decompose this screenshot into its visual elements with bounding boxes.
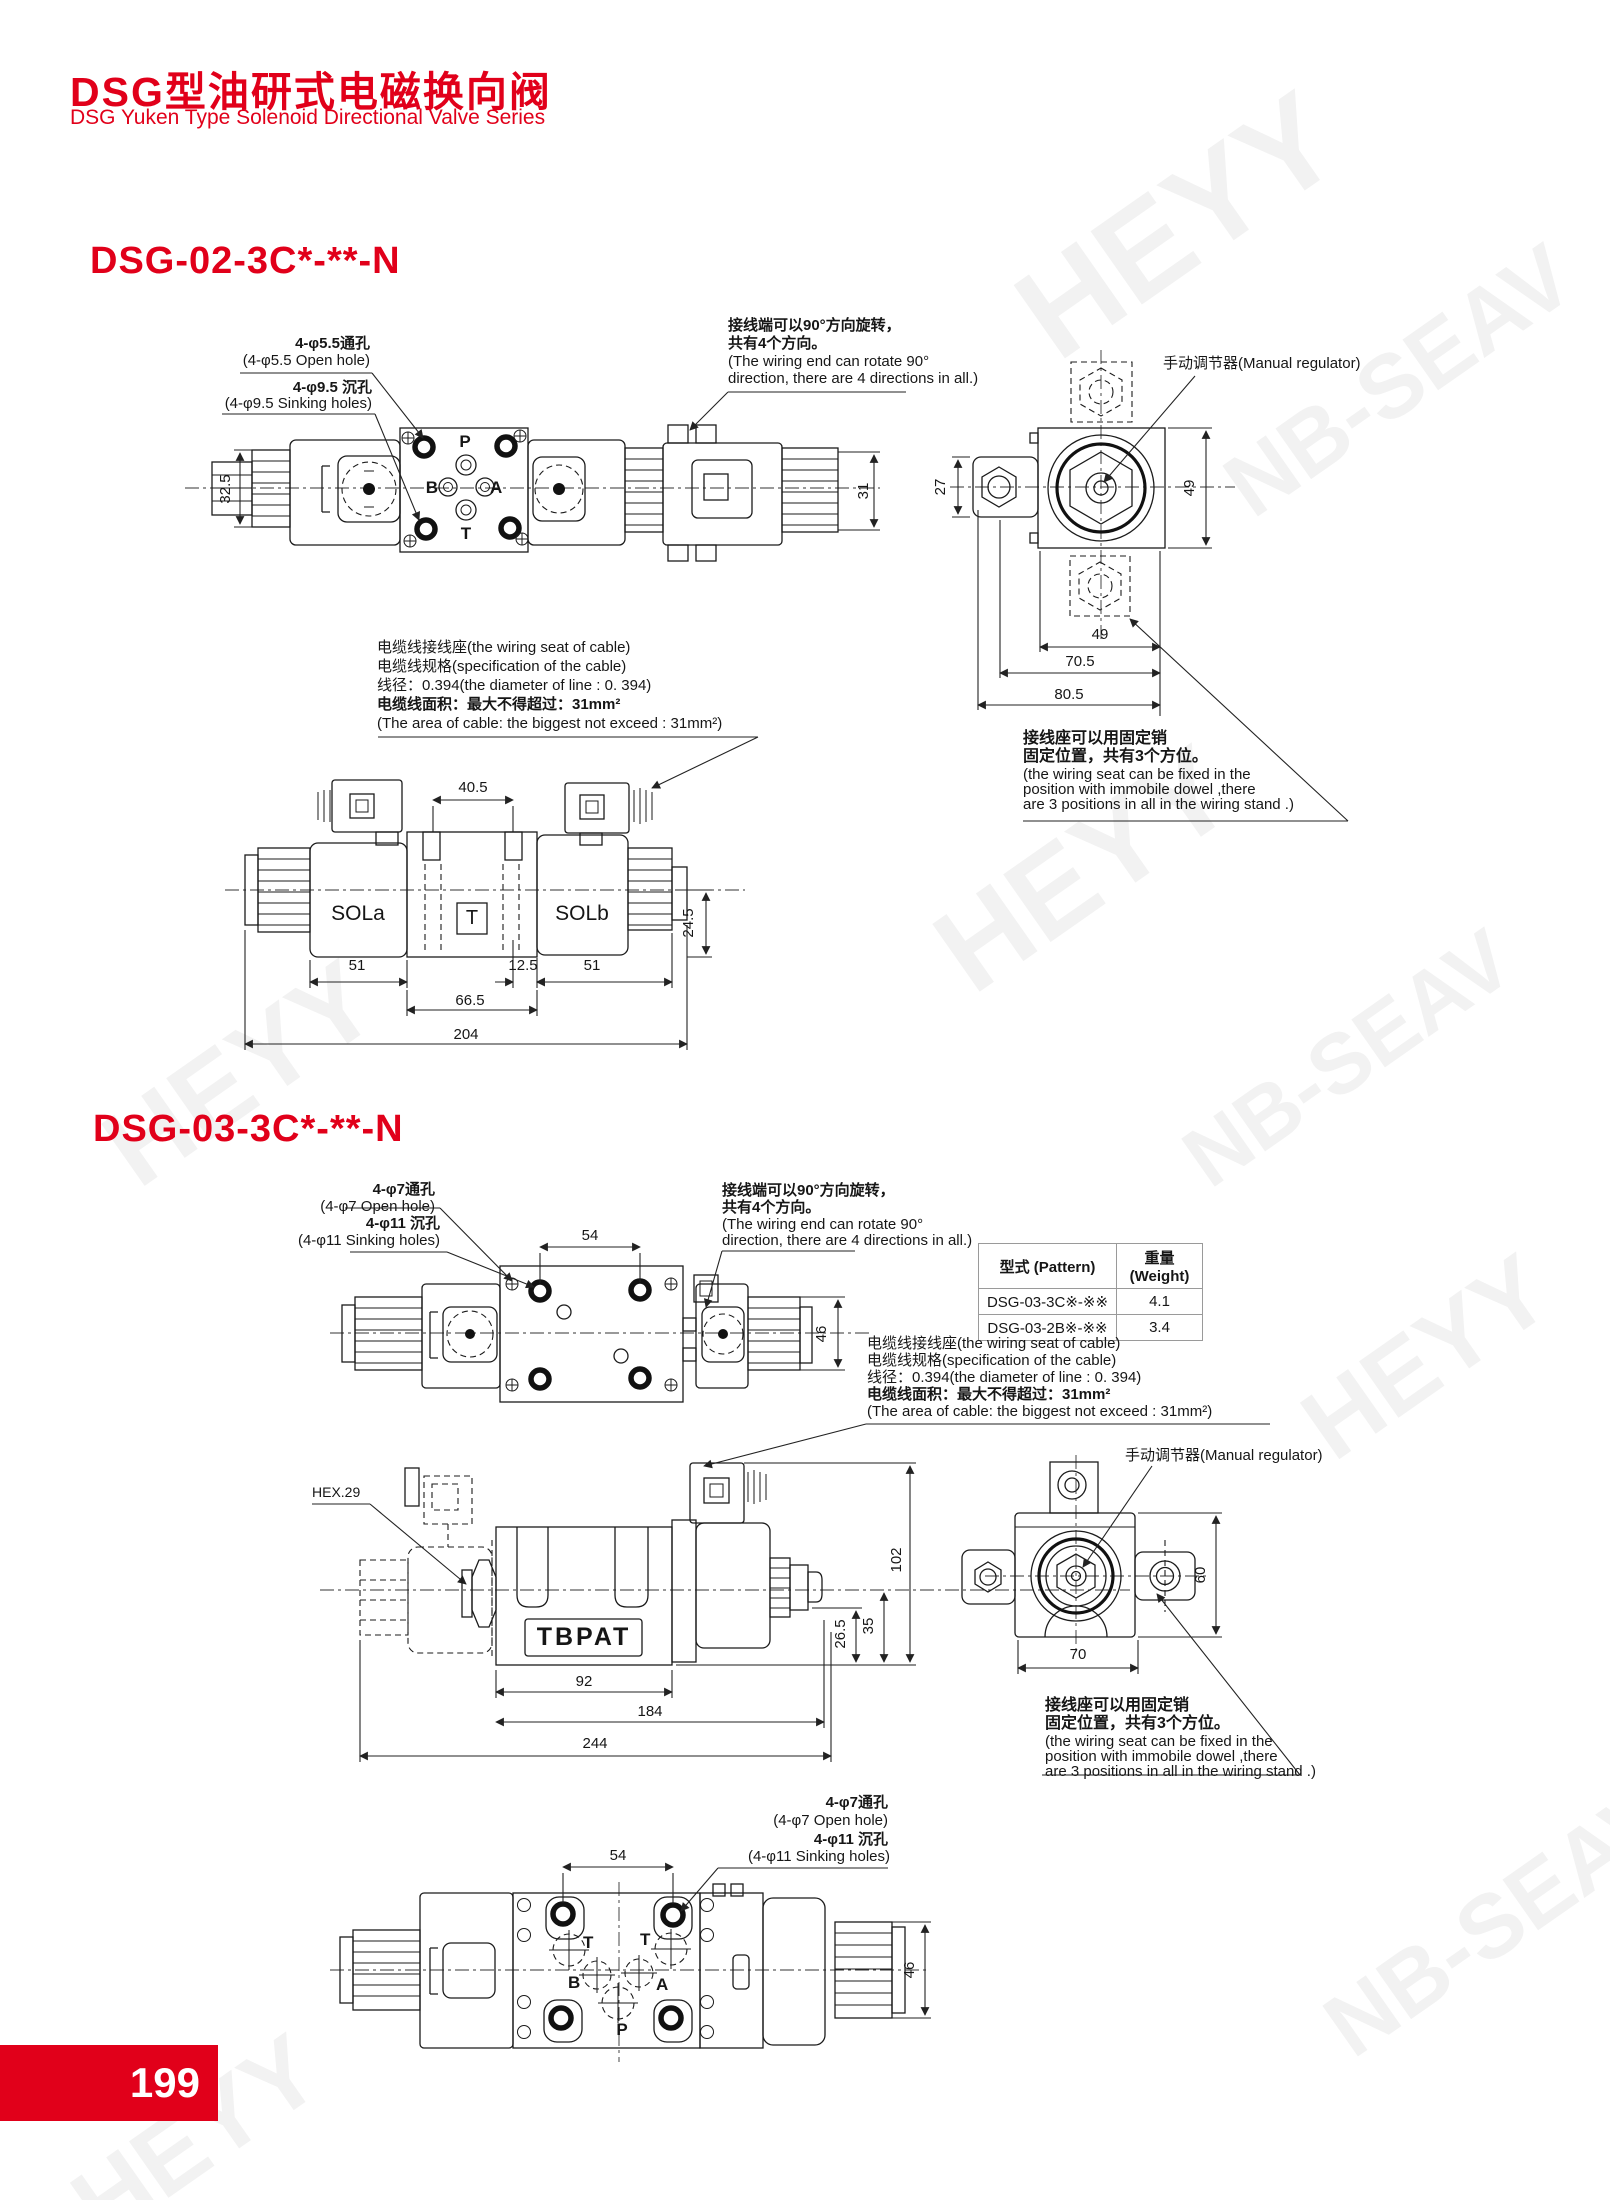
annotation-s2b-open-hole-zh: 4-φ7通孔 bbox=[738, 1794, 888, 1812]
dim-54-top: 54 bbox=[582, 1227, 599, 1245]
section2-title: DSG-03-3C*-**-N bbox=[93, 1108, 404, 1151]
port-label-a: A bbox=[656, 1975, 668, 1995]
annotation-s2-wiring-zh1: 接线座可以用固定销 bbox=[1045, 1696, 1189, 1715]
annotation-s1-cable-2: 电缆线规格(specification of the cable) bbox=[377, 658, 626, 676]
dim-102: 102 bbox=[888, 1547, 906, 1572]
catalog-page: HEYY NB-SEAV HEYY NB-SEAV HEYY HEYY NB-S… bbox=[0, 0, 1610, 2200]
annotation-s1-cable-3: 线径：0.394(the diameter of line : 0. 394) bbox=[377, 677, 651, 695]
annotation-s1-sink-hole-en: (4-φ9.5 Sinking holes) bbox=[198, 395, 372, 413]
weight-table-col-weight: 重量(Weight) bbox=[1117, 1244, 1203, 1289]
annotation-s2-rotate-en2: direction, there are 4 directions in all… bbox=[722, 1232, 972, 1250]
annotation-s1-rotate-en2: direction, there are 4 directions in all… bbox=[728, 370, 978, 388]
annotation-s2-cable-3: 线径：0.394(the diameter of line : 0. 394) bbox=[867, 1369, 1141, 1387]
dim-46-bottom: 46 bbox=[901, 1962, 919, 1979]
annotation-s2b-sink-hole-zh: 4-φ11 沉孔 bbox=[733, 1831, 888, 1849]
label-sola: SOLa bbox=[331, 901, 385, 926]
annotation-s1-rotate-zh2: 共有4个方向。 bbox=[728, 335, 826, 353]
weight-table-header: 型式 (Pattern) 重量(Weight) bbox=[979, 1244, 1203, 1289]
weight-cell: 4.1 bbox=[1117, 1289, 1203, 1315]
annotation-s2-wiring-zh2: 固定位置，共有3个方位。 bbox=[1045, 1714, 1230, 1733]
annotation-s1-cable-5: (The area of cable: the biggest not exce… bbox=[377, 715, 722, 733]
dim-92: 92 bbox=[576, 1673, 593, 1691]
dim-49-horizontal: 49 bbox=[1092, 626, 1109, 644]
weight-cell: 3.4 bbox=[1117, 1315, 1203, 1341]
dim-60: 60 bbox=[1192, 1567, 1210, 1584]
annotation-s2-open-hole-zh: 4-φ7通孔 bbox=[285, 1181, 435, 1199]
weight-table-col-pattern: 型式 (Pattern) bbox=[979, 1244, 1117, 1289]
annotation-s2-wiring-en3: are 3 positions in all in the wiring sta… bbox=[1045, 1763, 1316, 1781]
annotation-s2-open-hole-en: (4-φ7 Open hole) bbox=[270, 1198, 435, 1216]
dim-54-bottom: 54 bbox=[610, 1847, 627, 1865]
dim-184: 184 bbox=[637, 1703, 662, 1721]
port-label-b: B bbox=[408, 478, 438, 498]
dim-70: 70 bbox=[1070, 1646, 1087, 1664]
weight-table: 型式 (Pattern) 重量(Weight) DSG-03-3C※-※※ 4.… bbox=[978, 1243, 1203, 1341]
dim-12-5: 12.5 bbox=[508, 957, 537, 975]
annotation-s1-manual-regulator: 手动调节器(Manual regulator) bbox=[1163, 355, 1361, 373]
annotation-s2b-sink-hole-en: (4-φ11 Sinking holes) bbox=[714, 1848, 890, 1866]
label-tbpat: TBPAT bbox=[537, 1622, 632, 1652]
dim-26-5: 26.5 bbox=[832, 1619, 850, 1648]
dim-244: 244 bbox=[582, 1735, 607, 1753]
dim-40-5: 40.5 bbox=[458, 779, 487, 797]
dim-27: 27 bbox=[932, 479, 950, 496]
port-label-p: P bbox=[616, 2020, 627, 2040]
annotation-s1-rotate-en1: (The wiring end can rotate 90° bbox=[728, 353, 929, 371]
dim-70-5: 70.5 bbox=[1065, 653, 1094, 671]
annotation-s2-sink-hole-zh: 4-φ11 沉孔 bbox=[285, 1215, 440, 1233]
dim-32-5: 32.5 bbox=[217, 474, 235, 503]
dim-51b: 51 bbox=[584, 957, 601, 975]
dim-49-vertical: 49 bbox=[1181, 480, 1199, 497]
annotation-s2b-open-hole-en: (4-φ7 Open hole) bbox=[736, 1812, 888, 1830]
port-label-t: T bbox=[461, 524, 471, 544]
dim-24-5: 24.5 bbox=[680, 908, 698, 937]
page-title-en: DSG Yuken Type Solenoid Directional Valv… bbox=[70, 106, 545, 130]
annotation-s2-cable-4: 电缆线面积：最大不得超过：31mm² bbox=[867, 1386, 1110, 1404]
label-hex-29: HEX.29 bbox=[312, 1484, 360, 1501]
dim-51a: 51 bbox=[349, 957, 366, 975]
annotation-s1-wiring-en3: are 3 positions in all in the wiring sta… bbox=[1023, 796, 1294, 814]
dim-204: 204 bbox=[453, 1026, 478, 1044]
label-solb: SOLb bbox=[555, 901, 609, 926]
port-label-t2: T bbox=[640, 1930, 650, 1950]
annotation-s2-rotate-zh2: 共有4个方向。 bbox=[722, 1199, 820, 1217]
page-number-badge: 199 bbox=[0, 2045, 218, 2121]
drawing-dsg03-bottom-view bbox=[330, 1867, 931, 2062]
annotation-s1-cable-1: 电缆线接线座(the wiring seat of cable) bbox=[377, 639, 630, 657]
annotation-s2-sink-hole-en: (4-φ11 Sinking holes) bbox=[262, 1232, 440, 1250]
annotation-s2-cable-5: (The area of cable: the biggest not exce… bbox=[867, 1403, 1212, 1421]
annotation-s1-wiring-zh2: 固定位置，共有3个方位。 bbox=[1023, 747, 1208, 766]
dim-46-top: 46 bbox=[813, 1326, 831, 1343]
label-t-box: T bbox=[466, 906, 478, 930]
annotation-s1-rotate-zh1: 接线端可以90°方向旋转， bbox=[728, 317, 901, 335]
section1-title: DSG-02-3C*-**-N bbox=[90, 240, 401, 283]
annotation-s1-open-hole-en: (4-φ5.5 Open hole) bbox=[205, 352, 370, 370]
port-label-a: A bbox=[490, 478, 502, 498]
annotation-s1-cable-4: 电缆线面积：最大不得超过：31mm² bbox=[377, 696, 620, 714]
annotation-s2-cable-2: 电缆线规格(specification of the cable) bbox=[867, 1352, 1116, 1370]
port-label-b: B bbox=[568, 1973, 580, 1993]
annotation-s2-rotate-zh1: 接线端可以90°方向旋转， bbox=[722, 1182, 895, 1200]
pattern-cell: DSG-03-3C※-※※ bbox=[979, 1289, 1117, 1315]
annotation-s2-cable-1: 电缆线接线座(the wiring seat of cable) bbox=[867, 1335, 1120, 1353]
dim-66-5: 66.5 bbox=[455, 992, 484, 1010]
dim-31: 31 bbox=[855, 483, 873, 500]
drawing-dsg02-side-view bbox=[225, 737, 758, 1050]
table-row: DSG-03-3C※-※※ 4.1 bbox=[979, 1289, 1203, 1315]
port-label-p: P bbox=[459, 432, 470, 452]
annotation-s1-open-hole-zh: 4-φ5.5通孔 bbox=[215, 335, 370, 353]
dim-80-5: 80.5 bbox=[1054, 686, 1083, 704]
port-label-t1: T bbox=[583, 1933, 593, 1953]
annotation-s1-wiring-zh1: 接线座可以用固定销 bbox=[1023, 729, 1167, 748]
dim-35: 35 bbox=[860, 1618, 878, 1635]
annotation-s2-manual-regulator: 手动调节器(Manual regulator) bbox=[1125, 1447, 1323, 1465]
